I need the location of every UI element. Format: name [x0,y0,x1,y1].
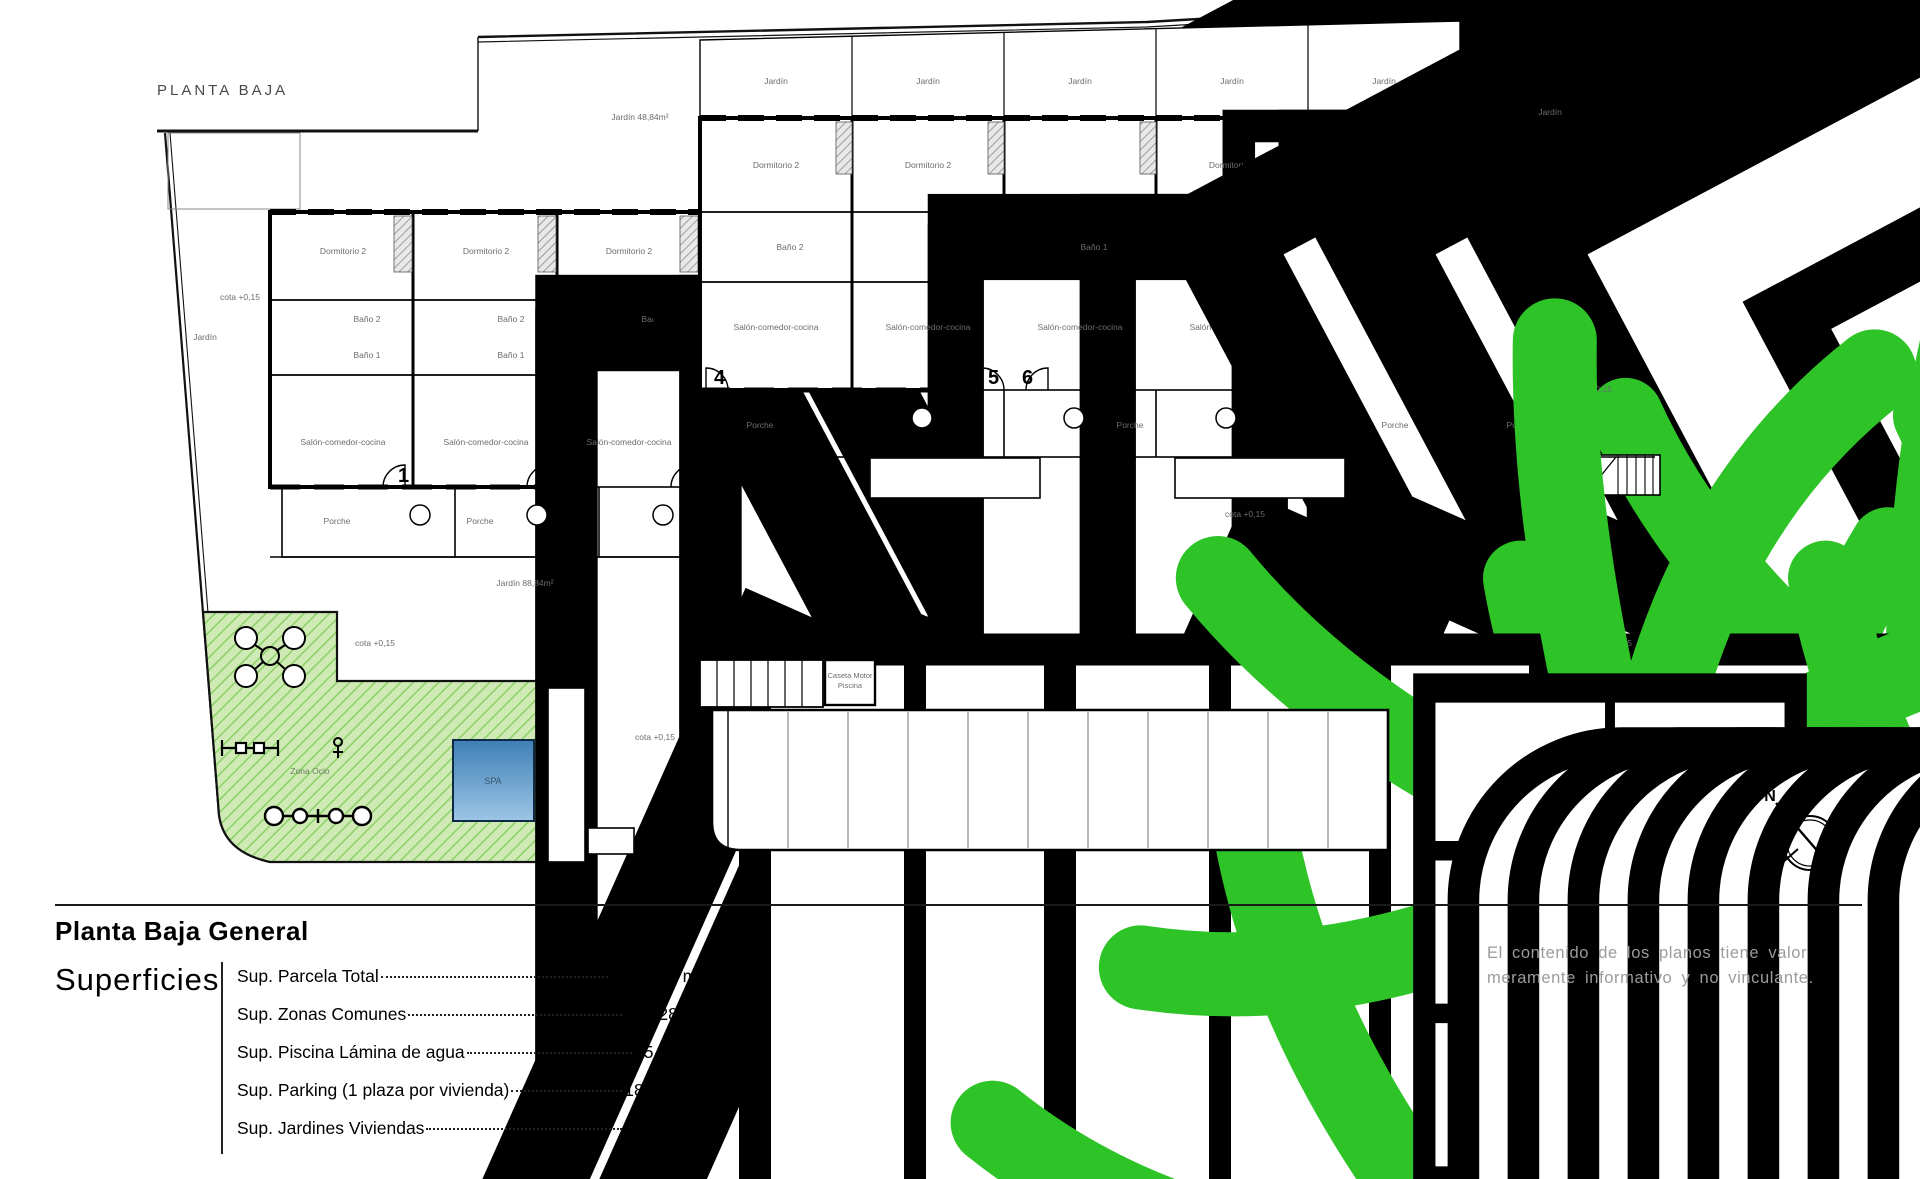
surface-label: Sup. Zonas Comunes [237,1004,406,1025]
porch-label: Porche [324,516,351,526]
room-label: Dormitorio 2 [905,160,952,170]
legend-rule [221,962,223,1154]
room-label: Baño 2 [498,314,525,324]
garden-label: Jardín [1538,107,1562,117]
porch-label: Porche [747,420,774,430]
garden-label: Jardín [193,332,217,342]
garden-label: Jardín [1372,76,1396,86]
cota-label: cota +0,15 [1225,509,1265,519]
porch-label: Porche [1382,420,1409,430]
cota-label: cota +0,15 [635,732,675,742]
room-label: Salón-comedor-cocina [586,437,671,447]
garden-label: Jardín 88,84m² [496,578,553,588]
unit-number-2: 2 [542,465,553,487]
legend-divider [55,904,1862,906]
leisure-garden [203,612,548,862]
spa-label: SPA [484,776,501,786]
unit-number-3: 3 [686,465,697,487]
legend-subtitle: Superficies [55,962,219,998]
disclaimer-line: meramente informativo y no vinculante. [1487,966,1882,991]
garden-label: Jardín [1220,76,1244,86]
room-label: Salón-comedor-cocina [443,437,528,447]
room-label: Salón-comedor-cocina [300,437,385,447]
floor-plan-sheet: PLANTA BAJA [0,0,1920,1179]
garden-label: Jardín 48,84m² [611,112,668,122]
disclaimer-note: El contenido de los planos tiene valor m… [1487,941,1882,991]
dot-leader [511,1090,622,1092]
surface-label: Sup. Parking (1 plaza por vivienda) [237,1080,509,1101]
dot-leader [408,1014,622,1016]
surface-value: 75,72 m2 [634,1042,707,1063]
cota-label: cota +0,15 [355,638,395,648]
garden-label: Jardín [1068,76,1092,86]
unit-number-5: 5 [988,367,999,389]
porch-label: Porche [467,516,494,526]
store-box [588,828,634,854]
room-label: Baño 2 [777,242,804,252]
room-label: Salón-comedor-cocina [733,322,818,332]
dot-leader [426,1128,622,1130]
room-label: Baño 1 [1081,242,1108,252]
garden-label: Jardín [916,76,940,86]
surface-list: Sup. Parcela Total 1.702,24 m2 Sup. Zona… [237,966,707,1156]
surface-row: Sup. Jardines Viviendas 307,66 m2 [237,1118,707,1156]
disclaimer-line: El contenido de los planos tiene valor [1487,941,1882,966]
north-label: N [1764,788,1776,805]
dot-leader [381,976,608,978]
leisure-label: Zona Ocio [290,766,329,776]
surface-row: Sup. Zonas Comunes 389,28 m2 [237,1004,707,1042]
room-label: Baño 2 [354,314,381,324]
surface-value: 182,44 m2 [624,1080,707,1101]
porch-label: Porche [1117,420,1144,430]
unit-number-6: 6 [1022,367,1033,389]
surface-label: Sup. Piscina Lámina de agua [237,1042,465,1063]
seesaw-icon [265,807,371,825]
garden-label: Jardín [764,76,788,86]
surface-row: Sup. Parking (1 plaza por vivienda) 182,… [237,1080,707,1118]
surface-value: 307,66 m2 [624,1118,707,1139]
surface-label: Sup. Parcela Total [237,966,379,987]
surface-value: 1.702,24 m2 [610,966,707,987]
cota-label: cota +0,15 [220,292,260,302]
room-label: Baño 1 [498,350,525,360]
room-label: Dormitorio 2 [463,246,510,256]
surface-value: 389,28 m2 [624,1004,707,1025]
unit-number-4: 4 [714,367,726,389]
room-label: Salón-comedor-cocina [885,322,970,332]
room-label: Baño 1 [354,350,381,360]
legend-title: Planta Baja General [55,916,309,947]
surface-row: Sup. Parcela Total 1.702,24 m2 [237,966,707,1004]
unit-number-1: 1 [398,465,409,487]
room-label: Dormitorio 2 [753,160,800,170]
shed-label: Piscina [838,681,863,690]
room-label: Dormitorio 2 [606,246,653,256]
surface-row: Sup. Piscina Lámina de agua 75,72 m2 [237,1042,707,1080]
shed-label: Caseta Motor [827,671,873,680]
room-label: Salón-comedor-cocina [1037,322,1122,332]
dot-leader [467,1052,632,1054]
surface-label: Sup. Jardines Viviendas [237,1118,424,1139]
room-label: Dormitorio 2 [320,246,367,256]
